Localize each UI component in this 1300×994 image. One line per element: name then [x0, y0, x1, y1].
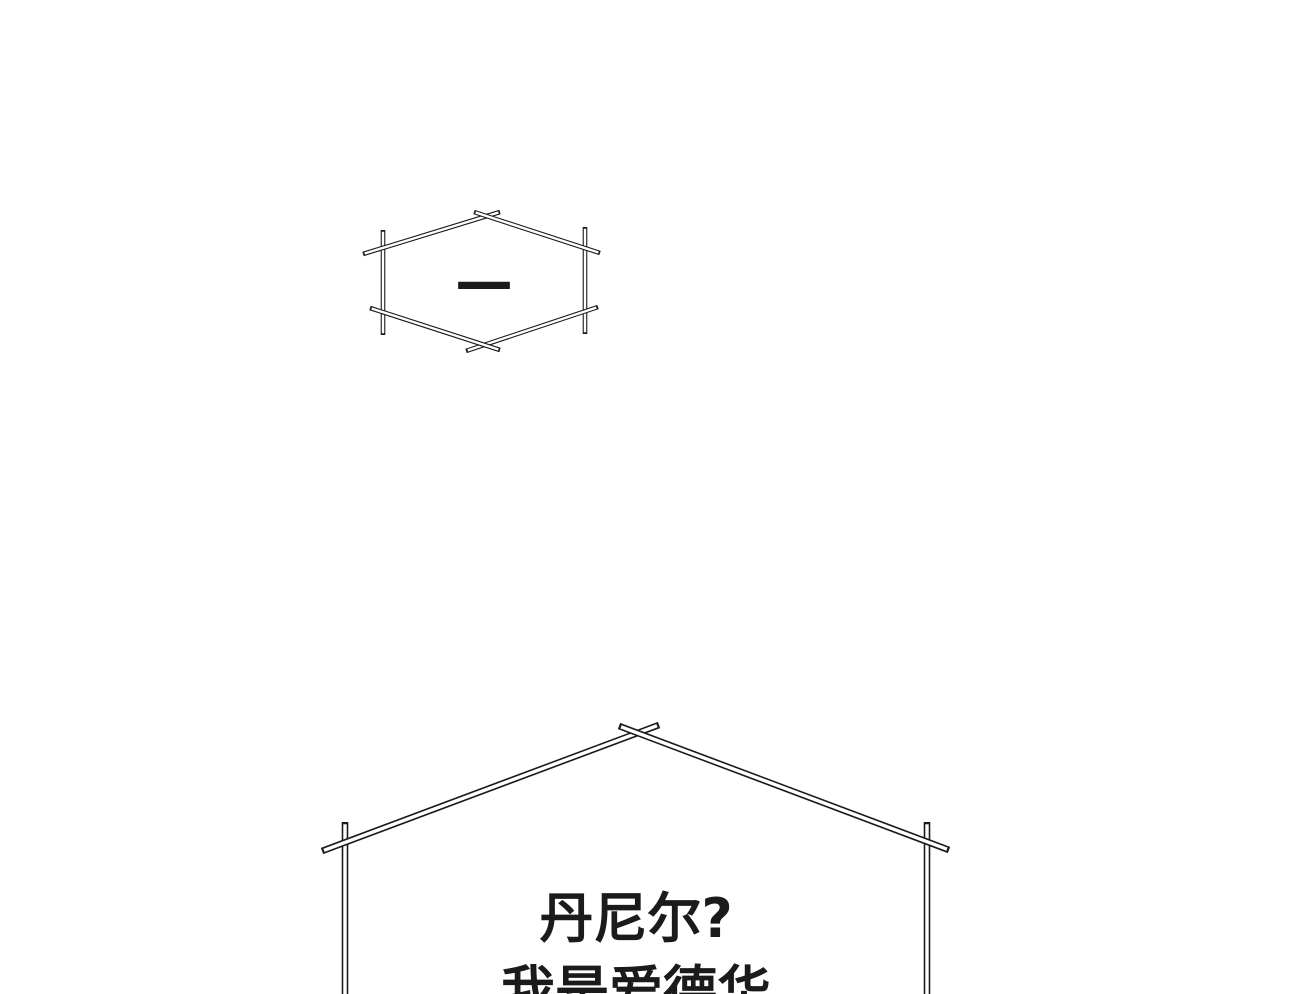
- dialogue-line-2: 我是爱德华: [345, 955, 927, 994]
- comic-page: — 丹尼尔? 我是爱德华: [0, 0, 1300, 994]
- speech-bubble-line-art: [0, 0, 1300, 994]
- large-bubble-dialogue: 丹尼尔? 我是爱德华: [345, 882, 927, 994]
- small-bubble-dash-text: —: [383, 216, 585, 346]
- dialogue-line-1: 丹尼尔?: [345, 882, 927, 955]
